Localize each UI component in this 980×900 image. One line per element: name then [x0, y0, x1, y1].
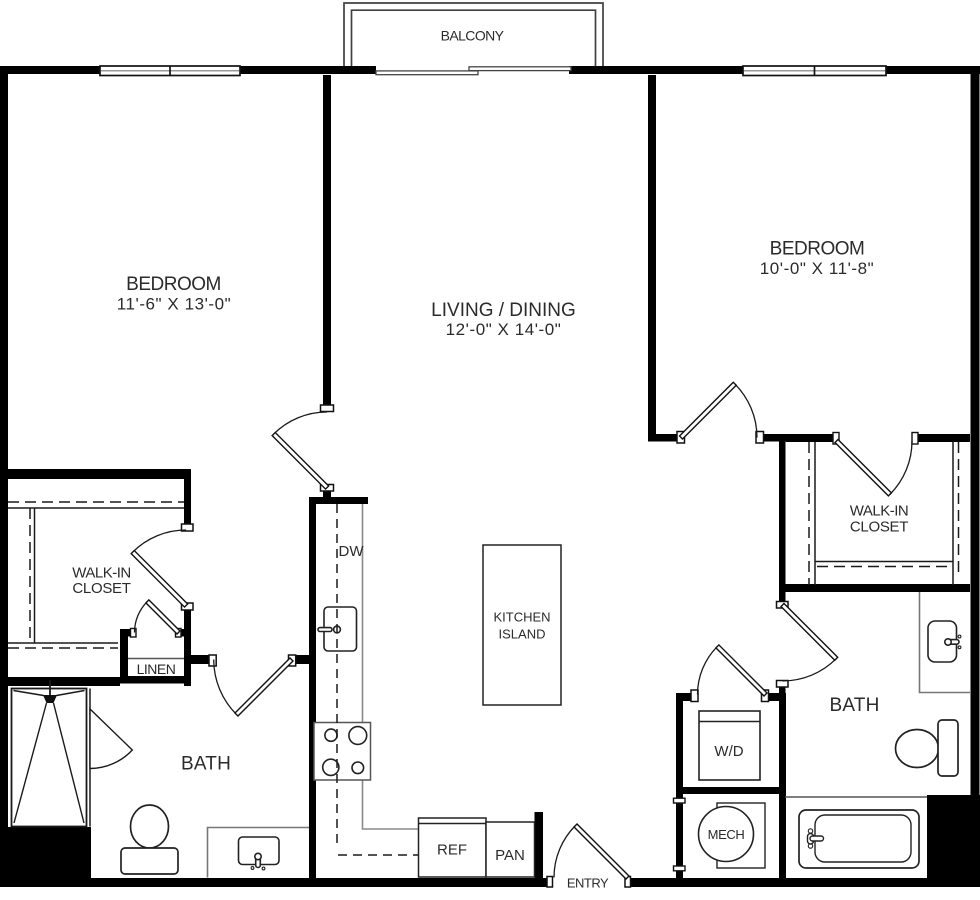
svg-text:CLOSET: CLOSET — [72, 580, 130, 597]
svg-text:DW: DW — [339, 543, 365, 560]
svg-text:10'-0" X 11'-8": 10'-0" X 11'-8" — [760, 259, 874, 278]
svg-text:BALCONY: BALCONY — [441, 28, 505, 44]
svg-text:WALK-IN: WALK-IN — [850, 503, 908, 520]
svg-text:PAN: PAN — [495, 847, 525, 864]
svg-text:ISLAND: ISLAND — [499, 627, 546, 642]
svg-text:ENTRY: ENTRY — [567, 876, 609, 891]
svg-text:CLOSET: CLOSET — [850, 519, 908, 536]
svg-text:11'-6" X 13'-0": 11'-6" X 13'-0" — [117, 295, 231, 314]
svg-text:WALK-IN: WALK-IN — [72, 565, 130, 582]
svg-text:LIVING / DINING: LIVING / DINING — [431, 300, 576, 321]
svg-text:REF: REF — [437, 842, 467, 859]
svg-text:BATH: BATH — [181, 754, 231, 775]
svg-text:BEDROOM: BEDROOM — [770, 239, 865, 260]
svg-text:KITCHEN: KITCHEN — [493, 610, 550, 625]
svg-text:MECH: MECH — [708, 827, 745, 842]
svg-text:BEDROOM: BEDROOM — [126, 274, 221, 295]
svg-text:W/D: W/D — [714, 743, 743, 760]
svg-text:BATH: BATH — [829, 695, 879, 716]
svg-text:12'-0" X 14'-0": 12'-0" X 14'-0" — [446, 320, 562, 339]
svg-text:LINEN: LINEN — [137, 661, 176, 677]
